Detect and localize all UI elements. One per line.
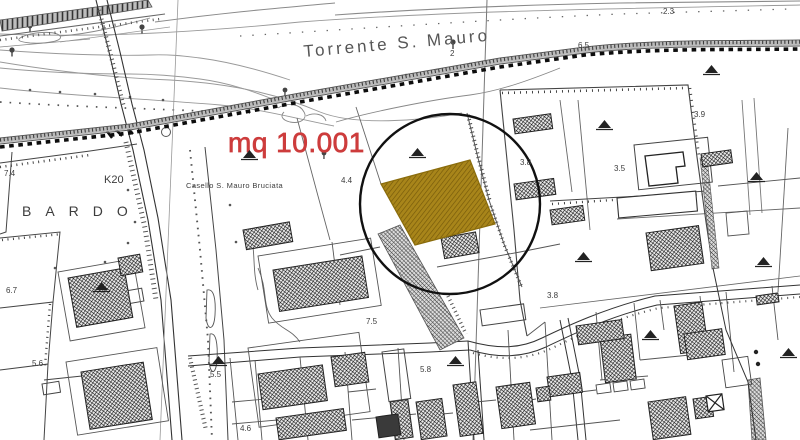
svg-text:3.9: 3.9 <box>694 110 706 119</box>
svg-text:5.5: 5.5 <box>210 370 222 379</box>
svg-text:4.6: 4.6 <box>240 424 252 433</box>
svg-text:4.4: 4.4 <box>341 176 353 185</box>
svg-text:6.7: 6.7 <box>6 286 18 295</box>
svg-text:7.5: 7.5 <box>366 317 378 326</box>
svg-text:6.5: 6.5 <box>578 41 590 50</box>
svg-text:K20: K20 <box>104 174 124 186</box>
svg-text:3.8: 3.8 <box>547 291 559 300</box>
svg-text:2: 2 <box>450 49 455 58</box>
svg-text:BARDO: BARDO <box>22 203 142 219</box>
svg-text:3.5: 3.5 <box>614 164 626 173</box>
svg-text:3.8: 3.8 <box>520 158 532 167</box>
svg-text:7.4: 7.4 <box>4 169 16 178</box>
svg-text:5.8: 5.8 <box>420 365 432 374</box>
svg-text:2.3: 2.3 <box>663 7 675 16</box>
svg-text:5.6: 5.6 <box>32 359 44 368</box>
svg-text:Casello S. Mauro Bruciata: Casello S. Mauro Bruciata <box>186 181 284 190</box>
